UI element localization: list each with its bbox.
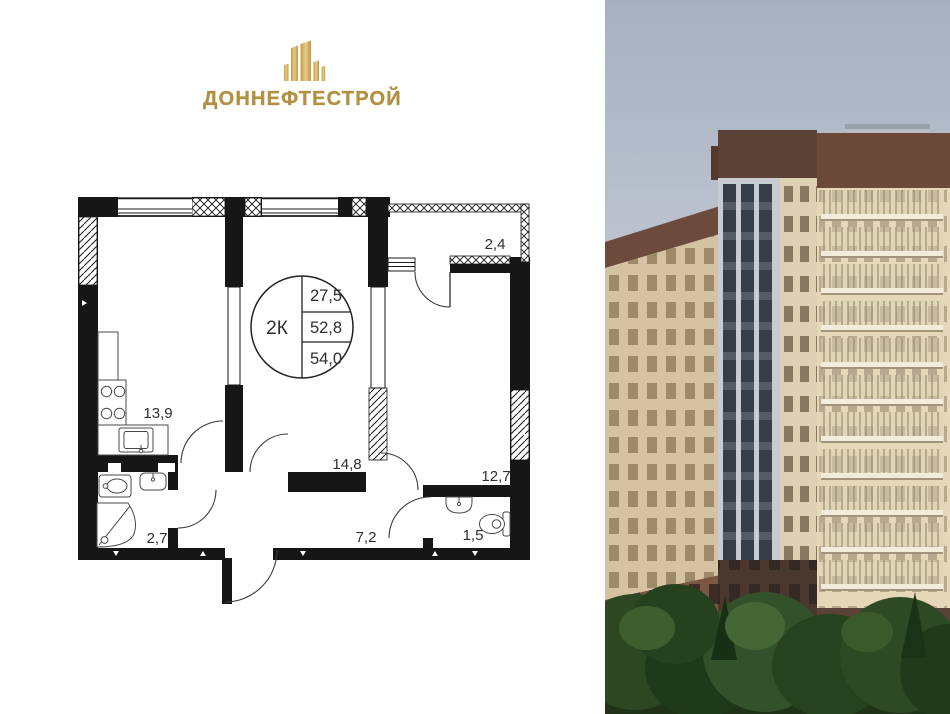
floorplan-panel: ДОННЕФТЕСТРОЙ <box>0 0 605 714</box>
building-photo-image <box>605 0 950 714</box>
bathroom-area-label: 2,7 <box>147 530 168 547</box>
balcony-door-arc <box>415 272 450 307</box>
area-apartment: 52,8 <box>310 319 342 337</box>
hallway-area-label: 7,2 <box>356 529 377 546</box>
kitchen-counter <box>98 332 118 380</box>
wc-door-arc <box>389 497 430 538</box>
unit-type: 2К <box>266 318 288 339</box>
right-building <box>817 124 950 668</box>
area-living: 27,5 <box>310 287 342 305</box>
screenshot-root: ДОННЕФТЕСТРОЙ <box>0 0 950 714</box>
living-area-label: 12,7 <box>481 468 510 485</box>
entrance-door-arc <box>225 550 277 602</box>
kitchen-door-arc <box>181 421 223 463</box>
building-photo <box>605 0 950 714</box>
central-tower <box>711 130 817 665</box>
trees <box>605 584 950 714</box>
balcony-area-label: 2,4 <box>485 236 506 253</box>
kitchen-area-label: 13,9 <box>143 405 172 422</box>
area-total: 54,0 <box>310 350 342 368</box>
bedroom-area-label: 14,8 <box>332 456 361 473</box>
bedroom-door-arc <box>250 434 288 472</box>
wc-area-label: 1,5 <box>463 527 484 544</box>
unit-badge: 2К 27,5 52,8 54,0 <box>251 276 353 378</box>
floor-plan: 2К 27,5 52,8 54,0 13,9 14,8 12,7 2,4 2,7… <box>0 0 605 714</box>
bathroom-door-arc <box>178 490 216 528</box>
